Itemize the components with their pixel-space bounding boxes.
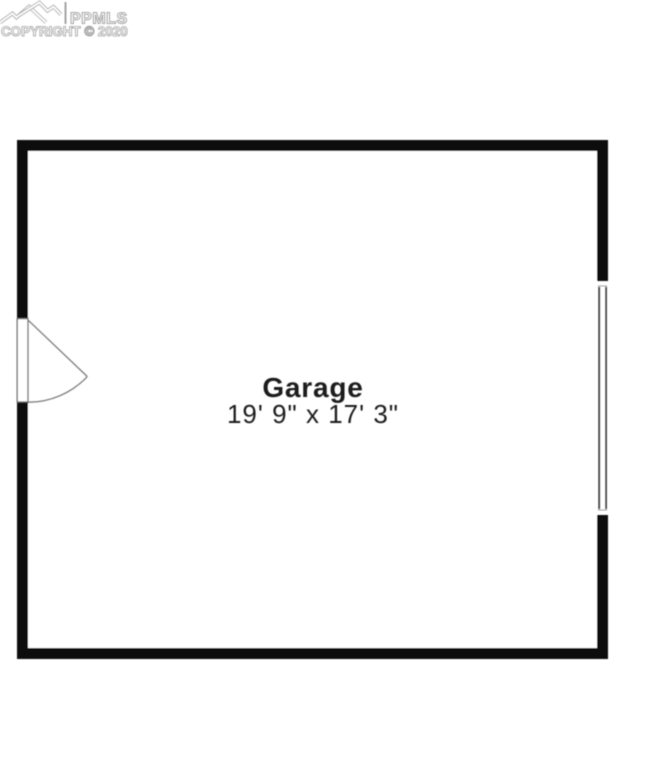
svg-text:COPYRIGHT © 2020: COPYRIGHT © 2020	[1, 24, 128, 39]
svg-text:19' 9" x 17' 3": 19' 9" x 17' 3"	[227, 399, 399, 429]
